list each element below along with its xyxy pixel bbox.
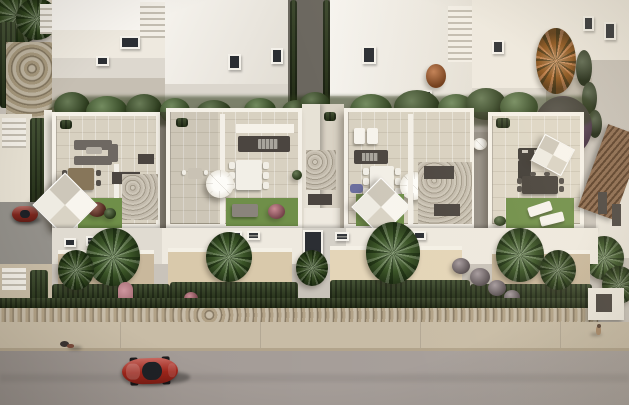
facade-band: [0, 226, 629, 322]
garden-sofa: [232, 204, 258, 217]
lawn-tree: [104, 208, 116, 219]
dining-chair: [229, 162, 235, 169]
car-glass: [20, 210, 30, 218]
window: [492, 40, 504, 54]
aerial-development-render: [0, 0, 629, 405]
roof-hatch: [138, 154, 154, 164]
roof-hatch: [434, 204, 460, 216]
dining-chair: [96, 170, 101, 176]
window: [64, 238, 76, 247]
planter: [496, 118, 510, 128]
window: [362, 46, 376, 64]
sidewalk-joint: [420, 322, 421, 348]
sidewalk-joint: [120, 322, 121, 348]
car-hood-highlight: [126, 363, 141, 379]
dining-chair: [517, 186, 522, 192]
staircase: [448, 6, 472, 62]
dining-chair: [559, 178, 564, 184]
rooftop-terrace-block-c: [344, 108, 474, 228]
agave: [488, 280, 506, 296]
bistro-table: [188, 168, 202, 179]
planter: [176, 118, 188, 127]
parasol: [206, 170, 234, 198]
dining-chair: [263, 172, 269, 179]
bush: [494, 216, 506, 226]
planter: [60, 120, 72, 129]
planter: [324, 112, 336, 121]
roof-hatch: [424, 166, 454, 179]
window: [96, 56, 109, 66]
sun-lounger: [354, 128, 365, 144]
agave: [470, 268, 490, 286]
dining-table: [522, 176, 558, 194]
gate-door: [596, 294, 612, 312]
palm-tree: [86, 228, 140, 286]
dining-chair: [544, 172, 550, 176]
sidewalk-joint: [260, 322, 261, 348]
window: [120, 36, 140, 49]
dining-table: [236, 160, 262, 190]
rooftop-terrace-block-a: [52, 112, 160, 228]
car-glass-roof: [142, 362, 163, 381]
roof-hatch: [308, 194, 332, 205]
planter-tree: [292, 170, 302, 180]
pedestrian-left: [58, 338, 84, 352]
dining-chair: [363, 168, 369, 175]
dining-chair: [263, 182, 269, 189]
center-patio-gap: [302, 104, 344, 234]
dining-chair: [395, 168, 401, 175]
staircase: [140, 2, 166, 38]
pedestrian-limb: [67, 344, 74, 348]
rooftop-terrace-block-b: [166, 108, 302, 228]
lavender-planter: [350, 184, 363, 193]
chair: [182, 170, 186, 175]
cypress: [576, 50, 592, 86]
louver-window: [247, 231, 260, 240]
palm-tree: [58, 250, 94, 290]
pedestrian-right: [590, 322, 610, 340]
window: [583, 16, 594, 31]
dining-chair: [517, 178, 522, 184]
coffee-table: [86, 147, 102, 154]
roof-plane: [165, 0, 290, 84]
dining-chair: [263, 162, 269, 169]
car-trunk-highlight: [168, 363, 176, 377]
armchair: [108, 144, 118, 162]
sidewalk-joint: [560, 322, 561, 348]
grill: [362, 153, 378, 161]
back-wall: [236, 124, 294, 133]
palm-tree: [496, 228, 544, 282]
sofa-cushion: [522, 150, 528, 153]
block-gap: [472, 112, 488, 230]
pink-bush: [268, 204, 285, 219]
sidewalk: [0, 322, 629, 350]
parasol: [473, 138, 487, 150]
dark-window: [598, 192, 607, 214]
palm-tree: [296, 250, 328, 286]
cantilever-parasol: [531, 134, 575, 176]
palm-tree: [366, 222, 420, 284]
grill: [258, 139, 278, 149]
lounge-sofa: [74, 156, 112, 165]
orange-bush: [426, 64, 446, 88]
dining-chair: [96, 180, 101, 186]
chair: [204, 170, 208, 175]
dark-window: [612, 204, 621, 226]
dining-chair: [559, 186, 564, 192]
window: [228, 54, 241, 70]
red-car: [119, 353, 182, 389]
tire-shading: [0, 374, 629, 382]
side-stairs: [2, 118, 26, 148]
pedestrian-head: [597, 324, 601, 328]
palm-tree: [206, 232, 252, 282]
window: [271, 48, 283, 64]
louver-window: [335, 232, 349, 241]
pebble-patio: [306, 150, 336, 190]
rooftop-terrace-block-d: [488, 112, 584, 228]
palm-tree: [540, 250, 576, 290]
agave: [452, 258, 470, 274]
divider-wall: [408, 114, 413, 226]
dining-chair: [363, 178, 369, 185]
street-band: [0, 322, 629, 405]
sun-lounger: [367, 128, 378, 144]
window: [604, 22, 616, 40]
dining-chair: [530, 172, 536, 176]
orange-autumn-tree: [536, 28, 576, 94]
pebble-floor: [122, 174, 158, 220]
